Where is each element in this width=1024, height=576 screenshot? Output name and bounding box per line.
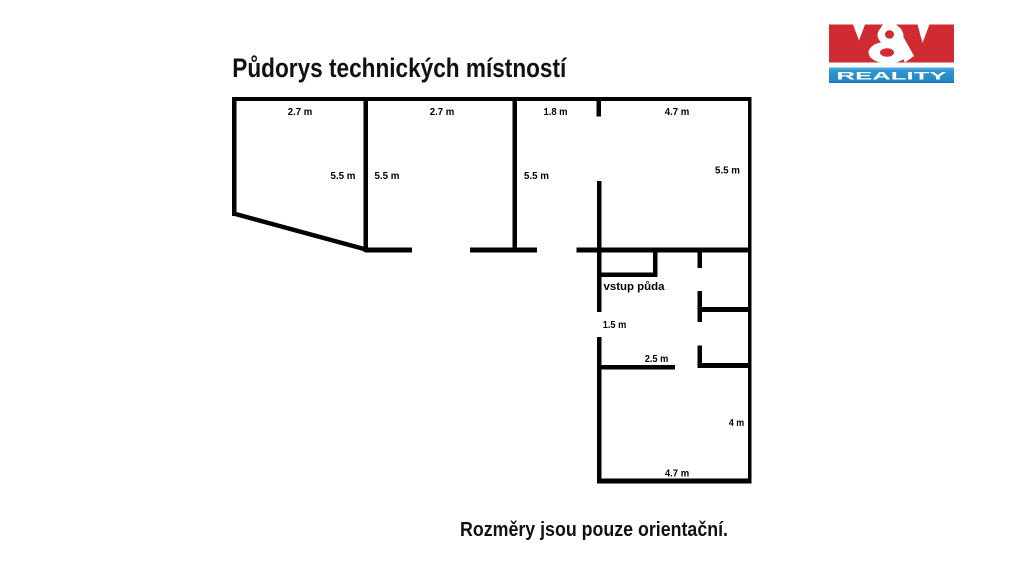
svg-text:Rozměry jsou pouze orientační.: Rozměry jsou pouze orientační. [460, 519, 728, 541]
svg-text:vstup půda: vstup půda [604, 281, 666, 293]
svg-text:5.5 m: 5.5 m [524, 170, 549, 182]
svg-text:5.5 m: 5.5 m [331, 170, 356, 182]
svg-text:5.5 m: 5.5 m [375, 170, 400, 182]
svg-text:2.7 m: 2.7 m [430, 106, 455, 118]
svg-text:Půdorys technických místností: Půdorys technických místností [232, 53, 567, 83]
svg-text:2.7 m: 2.7 m [288, 106, 313, 118]
svg-text:2.5 m: 2.5 m [645, 353, 669, 365]
svg-text:1.5 m: 1.5 m [603, 319, 627, 331]
svg-text:4.7 m: 4.7 m [665, 468, 689, 480]
svg-text:5.5 m: 5.5 m [715, 165, 740, 177]
svg-text:1.8 m: 1.8 m [544, 106, 568, 118]
svg-text:4 m: 4 m [729, 417, 744, 429]
svg-text:REALITY: REALITY [837, 70, 949, 82]
svg-text:4.7 m: 4.7 m [665, 106, 690, 118]
